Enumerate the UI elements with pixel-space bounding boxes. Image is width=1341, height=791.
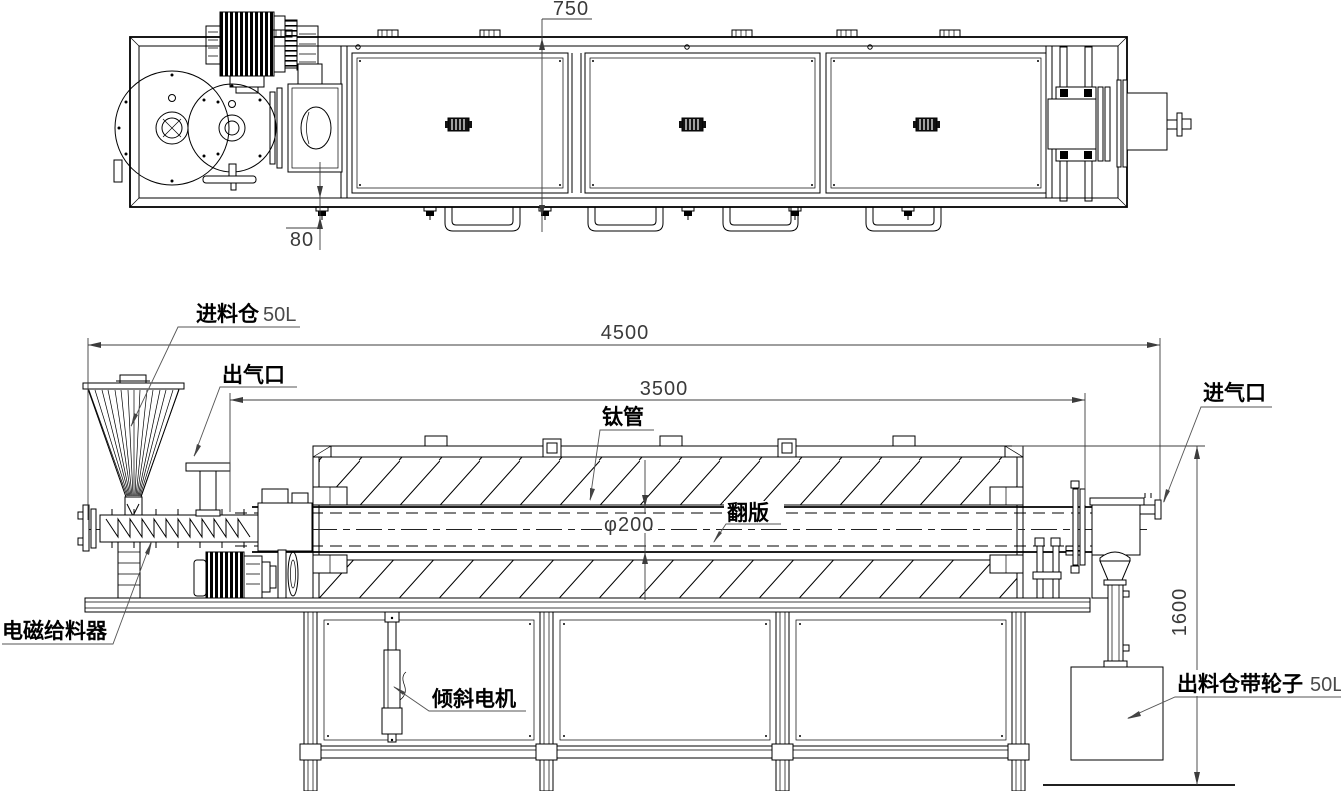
feed-hopper-label: 进料仓	[196, 302, 260, 326]
top-right-end	[1048, 47, 1191, 201]
feed-hopper-capacity: 50L	[263, 304, 296, 326]
screw-feeder	[78, 489, 312, 598]
stand-frame	[85, 598, 1090, 791]
label-gas-outlet: 出气口	[194, 363, 297, 457]
titanium-tube-label: 钛管	[602, 405, 644, 429]
label-gas-inlet: 进气口	[1163, 381, 1272, 503]
gas-inlet-label: 进气口	[1203, 381, 1266, 405]
tilt-motor-label: 倾斜电机	[431, 687, 516, 711]
engineering-drawing: 750 80	[0, 0, 1341, 791]
gas-outlet-pipe	[186, 463, 230, 516]
side-view: 4500 3500 φ200 1600 进料仓 50L	[2, 302, 1341, 791]
feeder-motor	[194, 550, 298, 598]
label-tilt-motor: 倾斜电机	[393, 686, 526, 711]
furnace-body	[313, 436, 1023, 598]
feed-hopper	[83, 375, 184, 518]
electromagnetic-feeder-label: 电磁给料器	[2, 619, 108, 643]
discharge-assembly	[1033, 481, 1235, 785]
flip-plate-label: 翻版	[727, 501, 769, 525]
bottom-feet	[316, 207, 914, 220]
label-electromagnetic-feeder: 电磁给料器	[2, 541, 152, 644]
top-frame	[130, 37, 1127, 207]
dim-3500-text: 3500	[640, 378, 689, 400]
dim-80-text: 80	[290, 229, 314, 251]
end-disc-small	[188, 84, 276, 172]
dim-750-text: 750	[553, 0, 589, 20]
discharge-bin-box	[1071, 667, 1163, 760]
gas-outlet-label: 出气口	[222, 363, 285, 387]
panel-grilles	[445, 118, 940, 131]
label-discharge-bin: 出料仓带轮子 50L	[1127, 670, 1341, 719]
discharge-bin-label: 出料仓带轮子	[1177, 672, 1303, 696]
stand-legs	[304, 612, 1025, 791]
dim-1600-text: 1600	[1169, 588, 1191, 637]
top-view: 750 80	[114, 0, 1191, 251]
dim-750: 750	[539, 0, 592, 232]
gearbox-top	[270, 84, 342, 172]
stand-panels	[324, 620, 1006, 740]
hand-wheel	[203, 164, 256, 190]
dim-dia200-text: φ200	[604, 514, 654, 536]
end-disc-large	[114, 71, 229, 185]
tilt-actuator	[382, 612, 406, 742]
top-edge-bolt-strips	[272, 30, 960, 37]
discharge-bin-capacity: 50L	[1310, 674, 1341, 696]
dim-4500-text: 4500	[601, 322, 650, 344]
